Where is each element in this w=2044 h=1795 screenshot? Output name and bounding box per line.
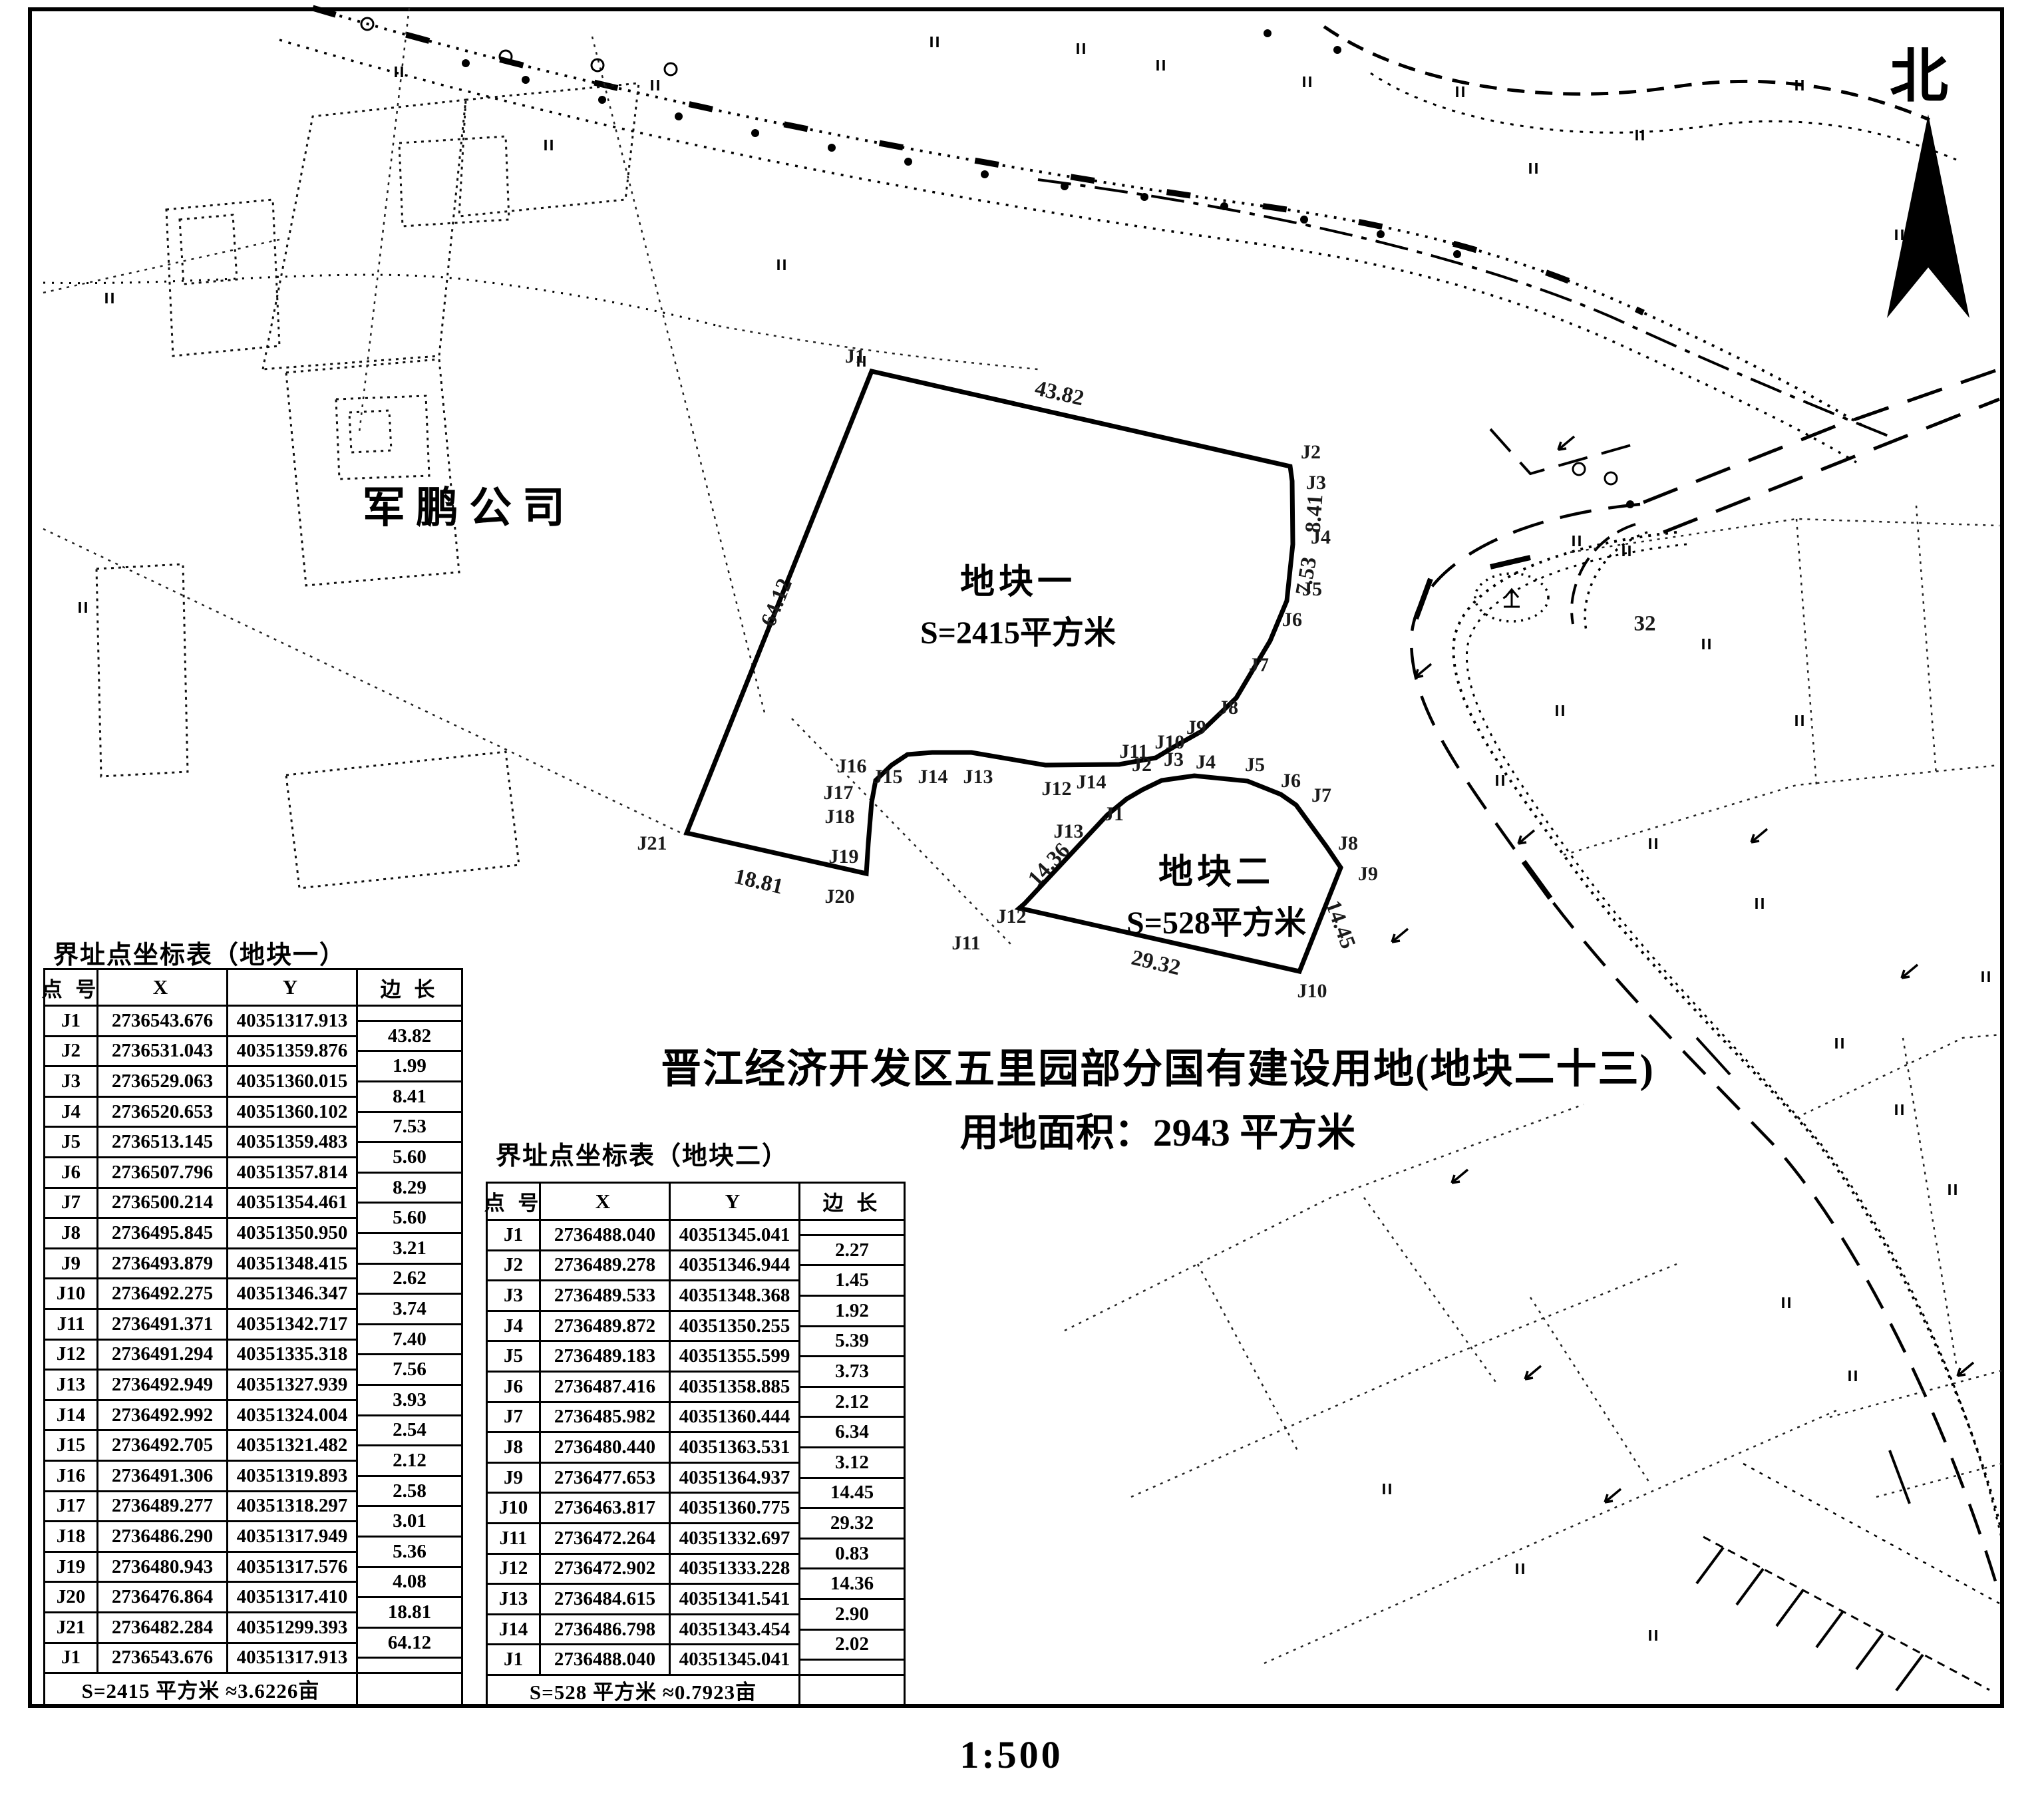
point-id-cell: J11 <box>43 1308 98 1341</box>
y-coord-cell: 40351360.775 <box>669 1492 800 1524</box>
point-id-cell: J16 <box>43 1460 98 1492</box>
table-header-cell: X <box>96 968 228 1007</box>
y-coord-cell: 40351360.444 <box>669 1401 800 1434</box>
sheet-title-line1: 晋江经济开发区五里园部分国有建设用地(地块二十三) <box>639 1035 1677 1094</box>
y-coord-cell: 40351324.004 <box>226 1399 358 1432</box>
edge-length-cell: 5.60 <box>356 1202 463 1234</box>
x-coord-cell: 2736495.845 <box>96 1217 228 1249</box>
y-coord-cell: 40351350.255 <box>669 1310 800 1343</box>
y-coord-cell: 40351355.599 <box>669 1340 800 1373</box>
y-coord-cell: 40351345.041 <box>669 1219 800 1251</box>
x-coord-cell: 2736492.992 <box>96 1399 228 1432</box>
edge-length-cell: 18.81 <box>356 1596 463 1629</box>
table-header-cell: 边 长 <box>356 968 463 1007</box>
y-coord-cell: 40351359.876 <box>226 1035 358 1068</box>
y-coord-cell: 40351317.576 <box>226 1551 358 1583</box>
edge-length-cell: 14.45 <box>798 1477 906 1510</box>
edge-length-cell: 7.40 <box>356 1323 463 1356</box>
y-coord-cell: 40351346.347 <box>226 1277 358 1310</box>
compass-north-label: 北 <box>1890 29 1948 114</box>
y-coord-cell: 40351364.937 <box>669 1462 800 1494</box>
y-coord-cell: 40351342.717 <box>226 1308 358 1341</box>
parcel2-area: S=528平方米 <box>1126 896 1306 943</box>
point-id-cell: J8 <box>43 1217 98 1249</box>
parcel1-area: S=2415平方米 <box>920 606 1116 653</box>
y-coord-cell: 40351318.297 <box>226 1490 358 1523</box>
y-coord-cell: 40351317.949 <box>226 1520 358 1553</box>
parcel2-tag: 地块二 S=528平方米 <box>1126 844 1306 943</box>
x-coord-cell: 2736489.183 <box>539 1340 671 1373</box>
table-area-footer: S=528 平方米 ≈0.7923亩 <box>486 1674 800 1707</box>
point-id-cell: J13 <box>486 1583 541 1615</box>
edge-length-spacer <box>356 1672 463 1706</box>
point-id-cell: J10 <box>486 1492 541 1524</box>
x-coord-cell: 2736488.040 <box>539 1219 671 1251</box>
x-coord-cell: 2736543.676 <box>96 1005 228 1037</box>
y-coord-cell: 40351343.454 <box>669 1613 800 1646</box>
y-coord-cell: 40351350.950 <box>226 1217 358 1249</box>
edge-length-cell: 43.82 <box>356 1020 463 1053</box>
x-coord-cell: 2736486.798 <box>539 1613 671 1646</box>
x-coord-cell: 2736520.653 <box>96 1096 228 1128</box>
edge-length-cell: 3.21 <box>356 1232 463 1265</box>
x-coord-cell: 2736489.872 <box>539 1310 671 1343</box>
y-coord-cell: 40351345.041 <box>669 1643 800 1676</box>
cadastral-map-sheet: { "compass": {"label": "北"}, "scale_labe… <box>0 0 2044 1795</box>
x-coord-cell: 2736472.902 <box>539 1553 671 1585</box>
x-coord-cell: 2736487.416 <box>539 1371 671 1403</box>
edge-length-cell: 8.41 <box>356 1080 463 1113</box>
edge-length-cell: 4.08 <box>356 1566 463 1599</box>
edge-length-cell: 6.34 <box>798 1416 906 1448</box>
y-coord-cell: 40351327.939 <box>226 1369 358 1401</box>
edge-length-cell: 5.36 <box>356 1536 463 1568</box>
edge-length-cell: 3.93 <box>356 1384 463 1416</box>
map-scale-label: 1:500 <box>878 1732 1144 1777</box>
x-coord-cell: 2736482.284 <box>96 1611 228 1644</box>
edge-length-cell: 1.92 <box>798 1295 906 1327</box>
point-id-cell: J1 <box>43 1642 98 1675</box>
edge-length-cell: 1.99 <box>356 1050 463 1082</box>
x-coord-cell: 2736492.275 <box>96 1277 228 1310</box>
point-id-cell: J1 <box>486 1219 541 1251</box>
point-id-cell: J12 <box>486 1553 541 1585</box>
point-id-cell: J17 <box>43 1490 98 1523</box>
x-coord-cell: 2736477.653 <box>539 1462 671 1494</box>
tree-icon <box>1504 589 1520 607</box>
table-area-footer: S=2415 平方米 ≈3.6226亩 <box>43 1672 358 1706</box>
table-title: 界址点坐标表（地块一） <box>43 934 356 971</box>
x-coord-cell: 2736492.949 <box>96 1369 228 1401</box>
edge-length-cell: 2.58 <box>356 1475 463 1508</box>
x-coord-cell: 2736484.615 <box>539 1583 671 1615</box>
table-header-cell: X <box>539 1182 671 1221</box>
y-coord-cell: 40351360.102 <box>226 1096 358 1128</box>
x-coord-cell: 2736529.063 <box>96 1065 228 1098</box>
y-coord-cell: 40351360.015 <box>226 1065 358 1098</box>
x-coord-cell: 2736491.306 <box>96 1460 228 1492</box>
edge-length-cell: 3.12 <box>798 1446 906 1479</box>
point-id-cell: J4 <box>43 1096 98 1128</box>
edge-length-cell: 2.27 <box>798 1234 906 1267</box>
point-id-cell: J1 <box>43 1005 98 1037</box>
x-coord-cell: 2736491.294 <box>96 1339 228 1371</box>
point-id-cell: J19 <box>43 1551 98 1583</box>
y-coord-cell: 40351332.697 <box>669 1522 800 1555</box>
parcel1-tag: 地块一 S=2415平方米 <box>920 554 1116 653</box>
parcel1-name: 地块一 <box>920 554 1116 603</box>
x-coord-cell: 2736500.214 <box>96 1187 228 1220</box>
point-id-cell: J7 <box>43 1187 98 1220</box>
x-coord-cell: 2736489.278 <box>539 1249 671 1282</box>
point-id-cell: J6 <box>486 1371 541 1403</box>
x-coord-cell: 2736507.796 <box>96 1156 228 1189</box>
edge-length-cell: 3.01 <box>356 1505 463 1538</box>
edge-length-cell: 2.62 <box>356 1263 463 1295</box>
point-id-cell: J14 <box>486 1613 541 1646</box>
table-title: 界址点坐标表（地块二） <box>486 1135 798 1172</box>
edge-length-cell: 2.12 <box>798 1386 906 1418</box>
point-id-cell: J15 <box>43 1429 98 1462</box>
company-label: 军鹏公司 <box>363 474 576 535</box>
table-header-cell: 边 长 <box>798 1182 906 1221</box>
point-id-cell: J8 <box>486 1431 541 1464</box>
y-coord-cell: 40351358.885 <box>669 1371 800 1403</box>
x-coord-cell: 2736472.264 <box>539 1522 671 1555</box>
north-arrow-icon <box>1887 114 1969 318</box>
table-header-cell: 点 号 <box>486 1182 541 1221</box>
y-coord-cell: 40351299.393 <box>226 1611 358 1644</box>
y-coord-cell: 40351359.483 <box>226 1126 358 1158</box>
y-coord-cell: 40351317.913 <box>226 1005 358 1037</box>
y-coord-cell: 40351341.541 <box>669 1583 800 1615</box>
edge-length-cell: 29.32 <box>798 1507 906 1540</box>
edge-length-cell: 64.12 <box>356 1627 463 1659</box>
x-coord-cell: 2736485.982 <box>539 1401 671 1434</box>
point-id-cell: J2 <box>43 1035 98 1068</box>
x-coord-cell: 2736480.943 <box>96 1551 228 1583</box>
edge-length-cell: 2.02 <box>798 1629 906 1661</box>
point-id-cell: J11 <box>486 1522 541 1555</box>
y-coord-cell: 40351321.482 <box>226 1429 358 1462</box>
point-id-cell: J14 <box>43 1399 98 1432</box>
edge-length-cell: 2.90 <box>798 1598 906 1631</box>
table-header-cell: 点 号 <box>43 968 98 1007</box>
edge-length-cell: 7.53 <box>356 1111 463 1144</box>
x-coord-cell: 2736463.817 <box>539 1492 671 1524</box>
point-id-cell: J2 <box>486 1249 541 1282</box>
x-coord-cell: 2736493.879 <box>96 1247 228 1280</box>
x-coord-cell: 2736491.371 <box>96 1308 228 1341</box>
x-coord-cell: 2736489.533 <box>539 1279 671 1312</box>
point-id-cell: J13 <box>43 1369 98 1401</box>
point-id-cell: J4 <box>486 1310 541 1343</box>
edge-length-cell: 5.39 <box>798 1325 906 1358</box>
y-coord-cell: 40351354.461 <box>226 1187 358 1220</box>
x-coord-cell: 2736489.277 <box>96 1490 228 1523</box>
point-id-cell: J7 <box>486 1401 541 1434</box>
point-id-cell: J1 <box>486 1643 541 1676</box>
point-id-cell: J5 <box>486 1340 541 1373</box>
point-id-cell: J12 <box>43 1339 98 1371</box>
point-id-cell: J18 <box>43 1520 98 1553</box>
edge-length-spacer <box>798 1674 906 1707</box>
y-coord-cell: 40351348.415 <box>226 1247 358 1280</box>
y-coord-cell: 40351317.410 <box>226 1581 358 1613</box>
y-coord-cell: 40351333.228 <box>669 1553 800 1585</box>
point-id-cell: J9 <box>43 1247 98 1280</box>
pond-outline <box>1475 573 1548 621</box>
edge-length-cell: 14.36 <box>798 1567 906 1600</box>
y-coord-cell: 40351317.913 <box>226 1642 358 1675</box>
edge-length-cell: 8.29 <box>356 1172 463 1204</box>
edge-length-cell: 1.45 <box>798 1264 906 1297</box>
point-id-cell: J21 <box>43 1611 98 1644</box>
x-coord-cell: 2736531.043 <box>96 1035 228 1068</box>
x-coord-cell: 2736513.145 <box>96 1126 228 1158</box>
parcel2-name: 地块二 <box>1126 844 1306 894</box>
edge-length-cell: 2.54 <box>356 1414 463 1447</box>
table-header-cell: Y <box>669 1182 800 1221</box>
point-id-cell: J5 <box>43 1126 98 1158</box>
point-id-cell: J3 <box>43 1065 98 1098</box>
point-id-cell: J3 <box>486 1279 541 1312</box>
x-coord-cell: 2736492.705 <box>96 1429 228 1462</box>
edge-length-cell: 3.73 <box>798 1355 906 1388</box>
y-coord-cell: 40351348.368 <box>669 1279 800 1312</box>
edge-length-cell: 2.12 <box>356 1444 463 1477</box>
x-coord-cell: 2736476.864 <box>96 1581 228 1613</box>
y-coord-cell: 40351363.531 <box>669 1431 800 1464</box>
x-coord-cell: 2736488.040 <box>539 1643 671 1676</box>
point-id-cell: J9 <box>486 1462 541 1494</box>
y-coord-cell: 40351319.893 <box>226 1460 358 1492</box>
y-coord-cell: 40351335.318 <box>226 1339 358 1371</box>
point-id-cell: J20 <box>43 1581 98 1613</box>
edge-length-cell: 3.74 <box>356 1293 463 1325</box>
edge-length-cell: 7.56 <box>356 1353 463 1386</box>
edge-length-cell: 5.60 <box>356 1141 463 1174</box>
edge-length-cell: 0.83 <box>798 1538 906 1570</box>
y-coord-cell: 40351357.814 <box>226 1156 358 1189</box>
table-header-cell: Y <box>226 968 358 1007</box>
x-coord-cell: 2736543.676 <box>96 1642 228 1675</box>
y-coord-cell: 40351346.944 <box>669 1249 800 1282</box>
point-id-cell: J10 <box>43 1277 98 1310</box>
x-coord-cell: 2736486.290 <box>96 1520 228 1553</box>
point-id-cell: J6 <box>43 1156 98 1189</box>
x-coord-cell: 2736480.440 <box>539 1431 671 1464</box>
